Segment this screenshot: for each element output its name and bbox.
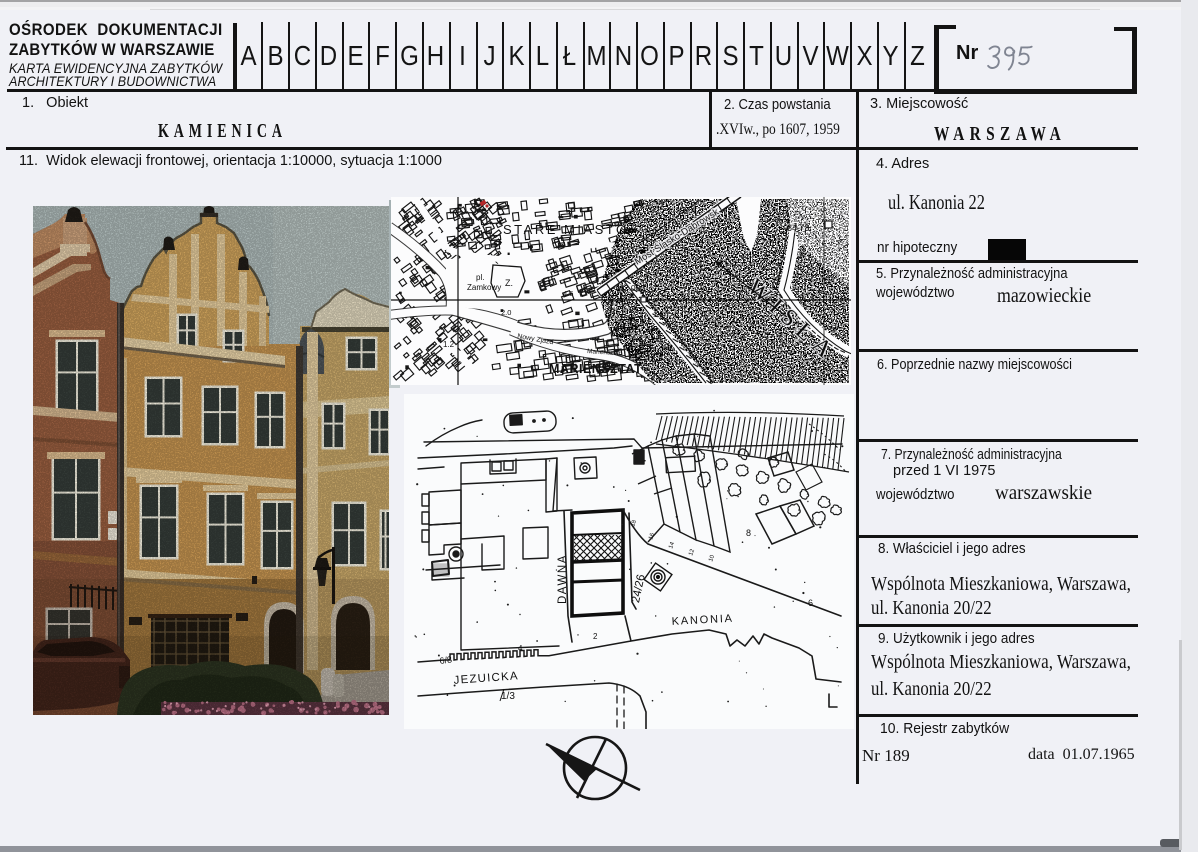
svg-text:STARE MIASTO: STARE MIASTO: [503, 222, 629, 237]
svg-text:6/8: 6/8: [439, 654, 453, 666]
svg-text:Z.: Z.: [505, 278, 513, 288]
svg-text:1.1: 1.1: [653, 310, 663, 319]
svg-text:MARIENSZTAT: MARIENSZTAT: [549, 362, 642, 376]
svg-text:84,78: 84,78: [787, 223, 810, 233]
svg-text:2: 2: [593, 632, 598, 641]
svg-text:6: 6: [808, 598, 813, 608]
svg-text:2.0: 2.0: [501, 308, 511, 317]
svg-text:pl.: pl.: [476, 273, 484, 282]
svg-text:4.5: 4.5: [563, 289, 573, 298]
svg-text:Zamkowy: Zamkowy: [467, 283, 501, 292]
svg-text:1.2: 1.2: [647, 324, 657, 333]
svg-text:42 000: 42 000: [619, 283, 645, 293]
svg-text:4: 4: [518, 644, 523, 653]
svg-text:85.7: 85.7: [629, 305, 646, 315]
svg-text:1.2: 1.2: [443, 340, 455, 349]
svg-text:8: 8: [746, 528, 751, 538]
svg-text:szk.: szk.: [662, 343, 675, 352]
